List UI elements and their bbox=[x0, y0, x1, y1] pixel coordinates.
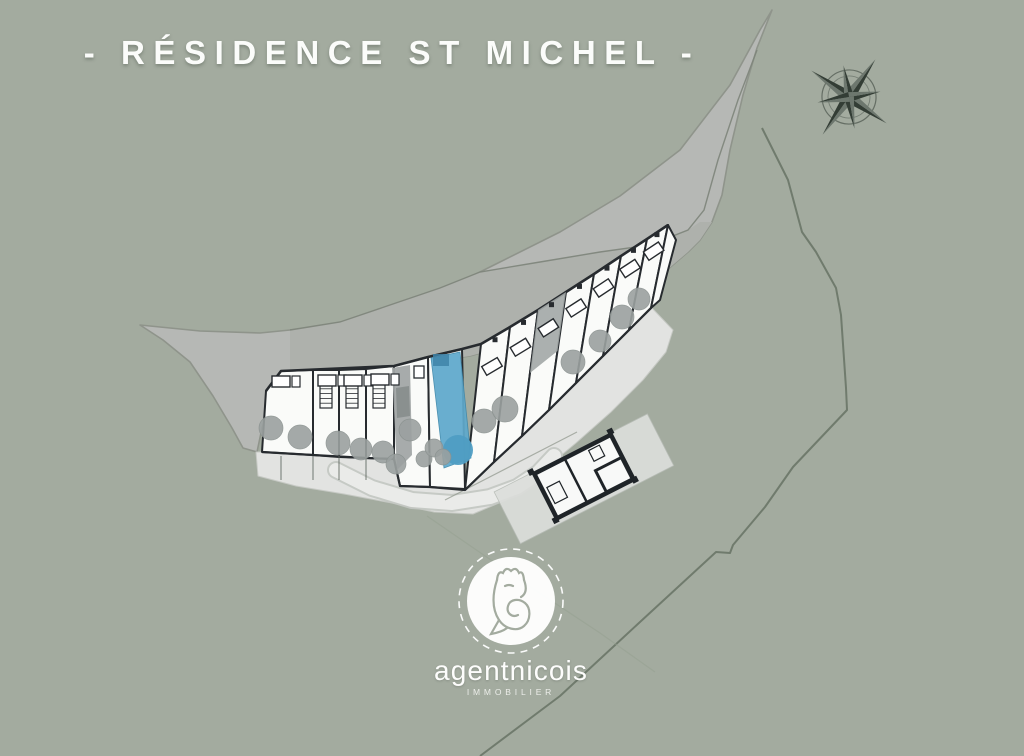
owl-logo-icon bbox=[449, 542, 573, 660]
fixture bbox=[391, 374, 399, 385]
tree-icon bbox=[399, 419, 421, 441]
entry-door bbox=[631, 248, 636, 253]
fixture bbox=[318, 375, 336, 386]
fixture bbox=[414, 366, 424, 378]
site-plan-image: - RÉSIDENCE ST MICHEL - agentnicois IMMO… bbox=[0, 0, 1024, 756]
patio-dark bbox=[396, 386, 410, 418]
fixture bbox=[344, 375, 362, 386]
entry-door bbox=[493, 337, 498, 342]
blue-unit-room bbox=[433, 354, 449, 366]
entry-door bbox=[521, 320, 526, 325]
tree-icon bbox=[628, 288, 650, 310]
entry-door bbox=[654, 232, 659, 237]
fixture bbox=[292, 376, 300, 387]
agency-name: agentnicois bbox=[434, 656, 588, 685]
agency-logo: agentnicois IMMOBILIER bbox=[434, 542, 588, 697]
tree-icon bbox=[288, 425, 312, 449]
entry-door bbox=[604, 266, 609, 271]
tree-icon bbox=[326, 431, 350, 455]
compass-rose-icon bbox=[806, 54, 891, 139]
tree-icon bbox=[386, 454, 406, 474]
tree-icon bbox=[589, 330, 611, 352]
tree-icon bbox=[435, 449, 451, 465]
page-title: - RÉSIDENCE ST MICHEL - bbox=[84, 34, 701, 72]
tree-icon bbox=[350, 438, 372, 460]
entry-door bbox=[577, 284, 582, 289]
tree-icon bbox=[561, 350, 585, 374]
agency-tagline: IMMOBILIER bbox=[467, 687, 555, 697]
fixture bbox=[371, 374, 389, 385]
tree-icon bbox=[492, 396, 518, 422]
tree-icon bbox=[610, 305, 634, 329]
fixture bbox=[272, 376, 290, 387]
tree-icon bbox=[259, 416, 283, 440]
entry-door bbox=[549, 302, 554, 307]
